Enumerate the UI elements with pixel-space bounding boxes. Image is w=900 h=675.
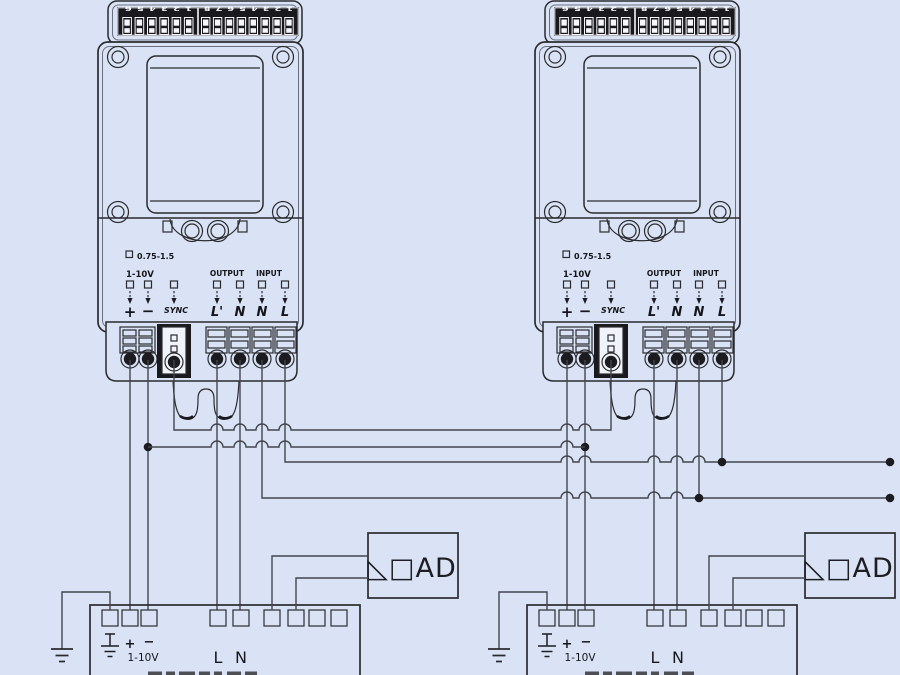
dimmer-unit-1: 1 2 3 4 5 6 1 2 3 4 5 6 7 8 <box>98 1 303 419</box>
svg-text:+: + <box>561 303 574 321</box>
dip-left-numbers: 1 2 3 4 5 6 <box>124 5 192 13</box>
sensor-window <box>147 56 263 213</box>
dimmer-unit-2: 1 2 3 4 5 61 2 3 4 5 6 7 8 <box>535 1 740 419</box>
svg-text:L: L <box>718 305 726 320</box>
output-group-label: OUTPUT <box>210 269 245 278</box>
svg-text:L': L' <box>211 305 223 320</box>
load-label: ◺□AD <box>804 553 894 584</box>
junction-line-bus <box>718 458 727 467</box>
neutral-bus-endpoint <box>886 494 895 503</box>
svg-text:N: N <box>694 305 705 320</box>
dip-right-numbers: 1 2 3 4 5 6 7 8 <box>640 5 730 13</box>
wiring-diagram: 1 2 3 4 5 6 1 2 3 4 5 6 7 8 <box>0 0 900 675</box>
control-range-label: 1-10V <box>126 270 154 280</box>
input-group-label: INPUT <box>693 269 720 278</box>
sensor-window <box>584 56 700 213</box>
svg-text:N: N <box>672 305 683 320</box>
line-bus-endpoint <box>886 458 895 467</box>
svg-text:N: N <box>257 305 268 320</box>
svg-text:+: + <box>124 303 137 321</box>
load-label: ◺□AD <box>367 553 457 584</box>
svg-text:−: − <box>142 302 155 320</box>
output-group-label: OUTPUT <box>647 269 682 278</box>
svg-text:N: N <box>235 305 246 320</box>
dip-right-numbers: 1 2 3 4 5 6 7 8 <box>203 5 293 13</box>
svg-text:L: L <box>281 305 289 320</box>
control-range-label: 1-10V <box>563 270 591 280</box>
dip-left-numbers: 1 2 3 4 5 6 <box>561 5 629 13</box>
driver-plus-label: + <box>125 637 136 652</box>
driver-neutral-label: N <box>235 648 247 667</box>
driver-range-label: 1-10V <box>564 652 596 664</box>
driver-line-label: L <box>214 648 223 667</box>
wire-gauge-label: 0.75-1.5 <box>574 252 612 261</box>
driver-neutral-label: N <box>672 648 684 667</box>
junction-neutral-bus <box>695 494 704 503</box>
svg-text:L': L' <box>648 305 660 320</box>
svg-text:−: − <box>579 302 592 320</box>
driver-minus-label: − <box>581 635 592 650</box>
wiring-diagram-canvas: 1 2 3 4 5 6 1 2 3 4 5 6 7 8 <box>0 0 900 675</box>
driver-plus-label: + <box>562 637 573 652</box>
wire-gauge-label: 0.75-1.5 <box>137 252 175 261</box>
svg-text:SYNC: SYNC <box>601 306 625 315</box>
driver-line-label: L <box>651 648 660 667</box>
input-group-label: INPUT <box>256 269 283 278</box>
driver-range-label: 1-10V <box>127 652 159 664</box>
svg-text:SYNC: SYNC <box>164 306 188 315</box>
driver-minus-label: − <box>144 635 155 650</box>
